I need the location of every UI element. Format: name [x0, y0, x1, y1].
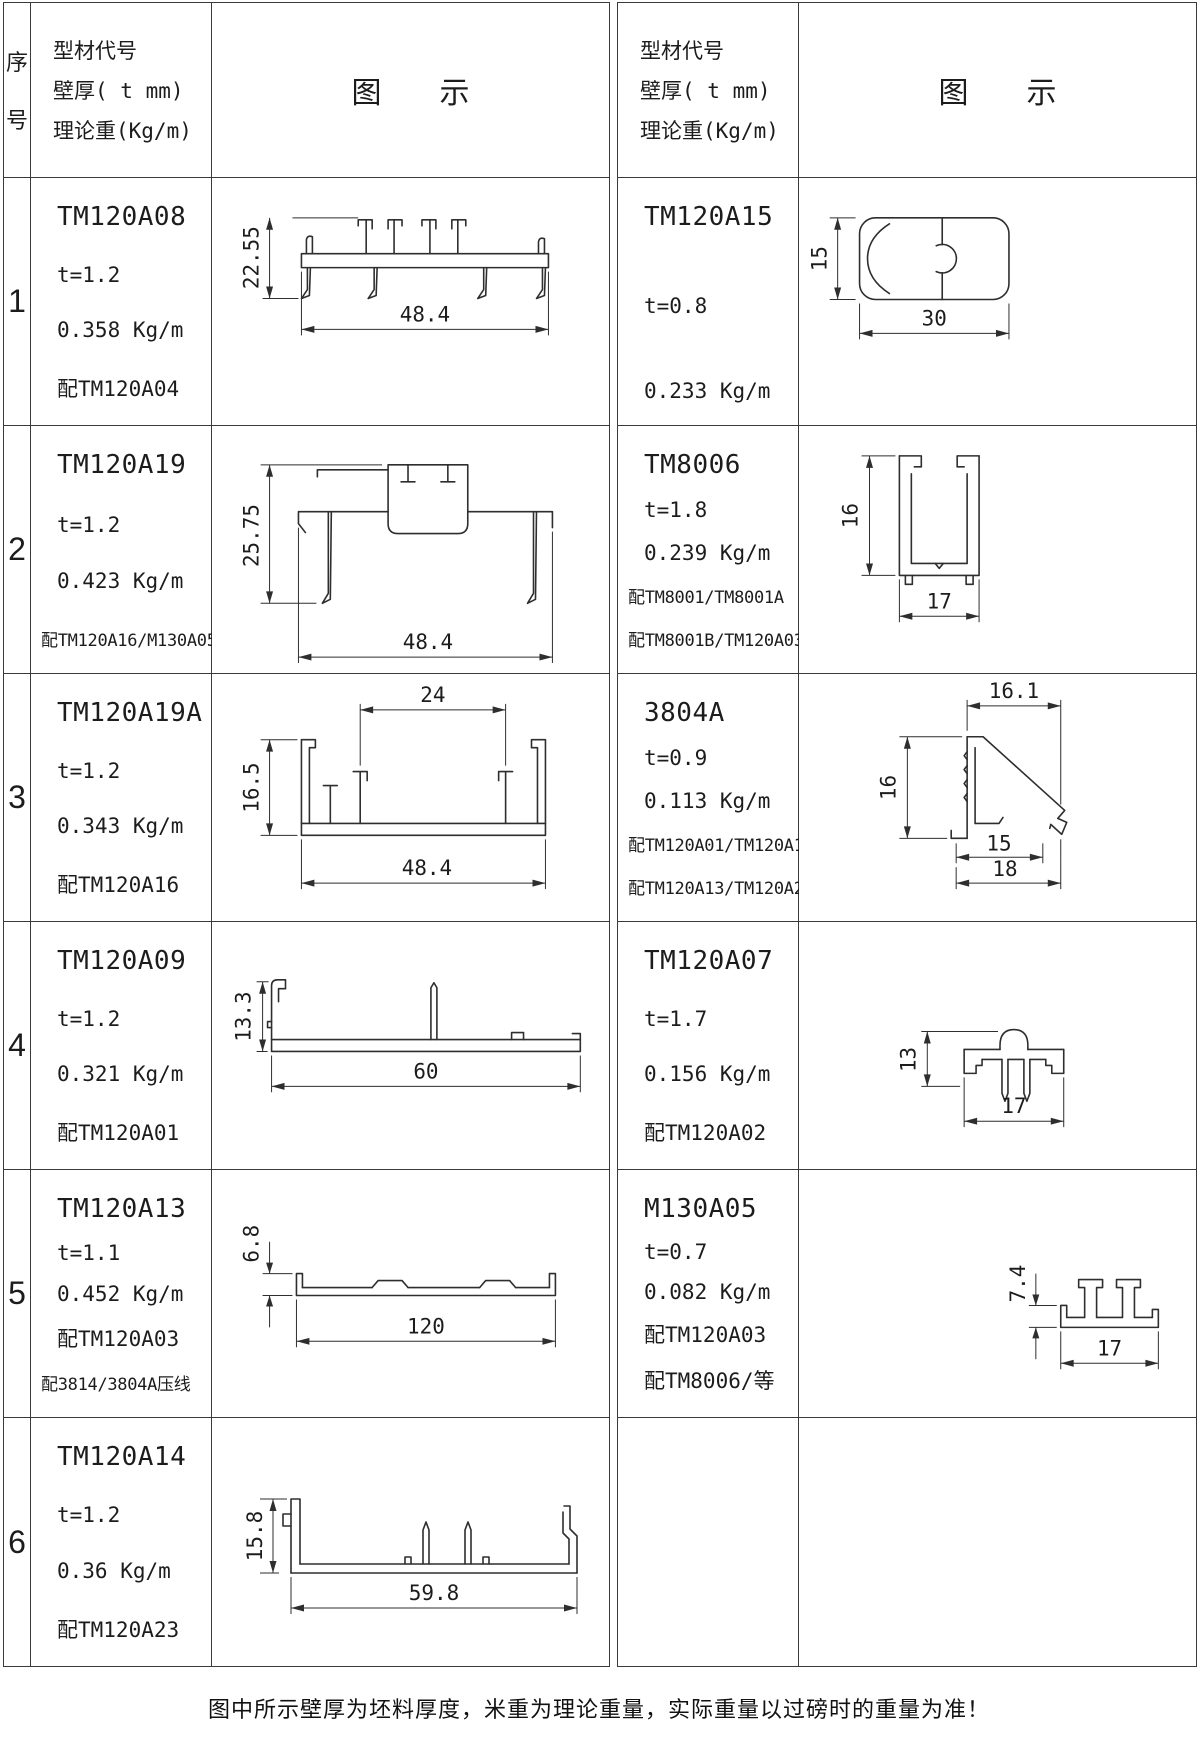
- dim-label-width: 60: [413, 1059, 438, 1083]
- spec-header-cell: 型材代号 壁厚( t mm) 理论重(Kg/m): [618, 3, 799, 178]
- profile-code: M130A05: [644, 1194, 794, 1224]
- diagram-header-cell: 图 示: [212, 3, 609, 178]
- dim-label-width: 30: [922, 306, 947, 330]
- spec-line: t=0.9: [644, 746, 794, 770]
- spec-header-cell: 型材代号 壁厚( t mm) 理论重(Kg/m): [31, 3, 212, 178]
- dim-label-width: 17: [927, 589, 952, 613]
- diagram-header-char1: 图: [939, 68, 969, 112]
- spec-line: t=1.7: [644, 1007, 794, 1031]
- diagram-cell: 24 16.5 48.4: [212, 674, 609, 922]
- spec-line: 0.36 Kg/m: [57, 1559, 207, 1583]
- dim-label-width: 59.8: [409, 1581, 460, 1605]
- spec-cell-tm120a07: TM120A07 t=1.7 0.156 Kg/m 配TM120A02: [618, 922, 799, 1170]
- dim-label-width: 48.4: [402, 856, 452, 880]
- spec-line: t=1.2: [57, 513, 207, 537]
- diagram-cell: 16.1 16 15 18: [799, 674, 1196, 922]
- spec-header-line1: 型材代号: [53, 35, 211, 65]
- seq-header-cell: 序 号: [4, 3, 31, 178]
- mate-line: 配TM8001B/TM120A03: [628, 626, 794, 651]
- profile-diagram-tm120a19: 25.75 48.4: [212, 426, 609, 673]
- profile-diagram-tm120a14: 15.8 59.8: [212, 1418, 609, 1666]
- diagram-header-char1: 图: [352, 68, 382, 112]
- diagram-cell: 13 17: [799, 922, 1196, 1170]
- spec-header-line2: 壁厚( t mm): [640, 75, 798, 105]
- spec-line: 0.239 Kg/m: [644, 541, 794, 565]
- seq-header-top: 序: [6, 45, 28, 77]
- diagram-cell: 6.8 120: [212, 1170, 609, 1418]
- diagram-cell: 25.75 48.4: [212, 426, 609, 674]
- spec-cell-3804a: 3804A t=0.9 0.113 Kg/m 配TM120A01/TM120A1…: [618, 674, 799, 922]
- spec-line: t=1.2: [57, 1007, 207, 1031]
- dim-label-width2: 18: [992, 857, 1017, 881]
- profile-diagram-tm8006: 16 17: [799, 426, 1196, 673]
- diagram-cell: 15.8 59.8: [212, 1418, 609, 1666]
- row-number-cell: 3: [4, 674, 31, 922]
- spec-line: 0.082 Kg/m: [644, 1280, 794, 1304]
- spec-cell-tm120a13: TM120A13 t=1.1 0.452 Kg/m 配TM120A03 配381…: [31, 1170, 212, 1418]
- spec-cell-tm120a19a: TM120A19A t=1.2 0.343 Kg/m 配TM120A16: [31, 674, 212, 922]
- dim-label-height: 7.4: [1006, 1265, 1030, 1303]
- profile-diagram-tm120a07: 13 17: [799, 922, 1196, 1169]
- profile-code: TM120A19A: [57, 698, 207, 728]
- spec-cell-tm8006: TM8006 t=1.8 0.239 Kg/m 配TM8001/TM8001A …: [618, 426, 799, 674]
- mate-line: 配TM8006/等: [644, 1365, 794, 1395]
- mate-line: 配3814/3804A压线: [41, 1370, 207, 1395]
- mate-line: 配TM120A16/M130A05: [41, 626, 207, 651]
- profile-code: TM120A08: [57, 202, 207, 232]
- diagram-header-cell: 图 示: [799, 3, 1196, 178]
- mate-line: 配TM120A01: [57, 1117, 207, 1147]
- dim-label-height: 16: [876, 775, 900, 800]
- diagram-header-char2: 示: [1027, 68, 1057, 112]
- dim-label-height: 16.5: [240, 762, 264, 812]
- profile-diagram-tm120a13: 6.8 120: [212, 1170, 609, 1417]
- dim-label-width: 48.4: [403, 630, 453, 654]
- dim-label-height: 13.3: [232, 991, 256, 1041]
- row-number-cell: 2: [4, 426, 31, 674]
- profile-code: 3804A: [644, 698, 794, 728]
- mate-line: 配TM120A04: [57, 373, 207, 403]
- spec-cell-tm120a08: TM120A08 t=1.2 0.358 Kg/m 配TM120A04: [31, 178, 212, 426]
- spec-header-line3: 理论重(Kg/m): [640, 115, 798, 145]
- profile-code: TM120A14: [57, 1442, 207, 1472]
- profile-table-right: 型材代号 壁厚( t mm) 理论重(Kg/m) 图 示 TM120A15 t=…: [617, 2, 1197, 1667]
- mate-line: 配TM120A16: [57, 869, 207, 899]
- spec-line: 0.233 Kg/m: [644, 379, 794, 403]
- spec-line: 0.343 Kg/m: [57, 814, 207, 838]
- spec-cell-tm120a09: TM120A09 t=1.2 0.321 Kg/m 配TM120A01: [31, 922, 212, 1170]
- empty-diagram-cell: [799, 1418, 1196, 1666]
- spec-line: t=1.8: [644, 498, 794, 522]
- spec-cell-tm120a15: TM120A15 t=0.8 0.233 Kg/m: [618, 178, 799, 426]
- spec-line: t=1.2: [57, 263, 207, 287]
- footer-note: 图中所示壁厚为坯料厚度，米重为理论重量，实际重量以过磅时的重量为准！: [3, 1692, 1195, 1724]
- spec-cell-tm120a19: TM120A19 t=1.2 0.423 Kg/m 配TM120A16/M130…: [31, 426, 212, 674]
- spec-header-line1: 型材代号: [640, 35, 798, 65]
- mate-line: 配TM120A01/TM120A11: [628, 831, 794, 856]
- row-number-cell: 4: [4, 922, 31, 1170]
- dim-label-height: 16: [839, 503, 863, 528]
- dim-label-height: 13: [896, 1047, 920, 1072]
- dim-label-width: 15: [986, 831, 1011, 855]
- spec-line: 0.113 Kg/m: [644, 789, 794, 813]
- profile-diagram-m130a05: 7.4 17: [799, 1170, 1196, 1417]
- dim-label-top: 24: [420, 683, 445, 707]
- profile-diagram-tm120a08: 22.55 48.4: [212, 178, 609, 425]
- dim-label-width: 17: [1097, 1336, 1122, 1360]
- mate-line: 配TM120A02: [644, 1117, 794, 1147]
- dim-label-height: 6.8: [240, 1225, 264, 1263]
- spec-cell-tm120a14: TM120A14 t=1.2 0.36 Kg/m 配TM120A23: [31, 1418, 212, 1666]
- spec-header-line3: 理论重(Kg/m): [53, 115, 211, 145]
- profile-diagram-3804a: 16.1 16 15 18: [799, 674, 1196, 921]
- spec-line: 0.358 Kg/m: [57, 318, 207, 342]
- profile-table-left: 序 号 型材代号 壁厚( t mm) 理论重(Kg/m) 图 示 1 TM120…: [3, 2, 610, 1667]
- spec-line: t=0.8: [644, 294, 794, 318]
- spec-line: 0.321 Kg/m: [57, 1062, 207, 1086]
- profile-diagram-tm120a19a: 24 16.5 48.4: [212, 674, 609, 921]
- mate-line: 配TM120A23: [57, 1614, 207, 1644]
- profile-code: TM8006: [644, 450, 794, 480]
- spec-cell-m130a05: M130A05 t=0.7 0.082 Kg/m 配TM120A03 配TM80…: [618, 1170, 799, 1418]
- row-number-cell: 5: [4, 1170, 31, 1418]
- diagram-cell: 13.3 60: [212, 922, 609, 1170]
- empty-spec-cell: [618, 1418, 799, 1666]
- profile-code: TM120A19: [57, 450, 207, 480]
- spec-line: t=0.7: [644, 1240, 794, 1264]
- spec-line: t=1.2: [57, 1503, 207, 1527]
- profile-code: TM120A15: [644, 202, 794, 232]
- dim-label-height: 15: [808, 246, 832, 271]
- profile-code: TM120A13: [57, 1194, 207, 1224]
- spec-header-line2: 壁厚( t mm): [53, 75, 211, 105]
- profile-diagram-tm120a15: 15 30: [799, 178, 1196, 425]
- seq-header-bottom: 号: [6, 103, 28, 135]
- spec-line: t=1.2: [57, 759, 207, 783]
- spec-line: 0.156 Kg/m: [644, 1062, 794, 1086]
- profile-code: TM120A09: [57, 946, 207, 976]
- dim-label-height: 15.8: [243, 1511, 267, 1562]
- diagram-cell: 7.4 17: [799, 1170, 1196, 1418]
- dim-label-width: 120: [407, 1314, 445, 1338]
- dim-label-width: 48.4: [400, 302, 450, 326]
- dim-label-height: 22.55: [240, 226, 264, 289]
- row-number-cell: 6: [4, 1418, 31, 1666]
- spec-line: 0.423 Kg/m: [57, 569, 207, 593]
- dim-label-width: 17: [1001, 1094, 1026, 1118]
- diagram-cell: 15 30: [799, 178, 1196, 426]
- diagram-header-char2: 示: [440, 68, 470, 112]
- diagram-cell: 16 17: [799, 426, 1196, 674]
- mate-line: 配TM120A03: [57, 1323, 207, 1353]
- mate-line: 配TM120A03: [644, 1319, 794, 1349]
- mate-line: 配TM8001/TM8001A: [628, 583, 794, 608]
- dim-label-top: 16.1: [989, 679, 1039, 703]
- dim-label-height: 25.75: [240, 504, 264, 567]
- diagram-cell: 22.55 48.4: [212, 178, 609, 426]
- spec-line: 0.452 Kg/m: [57, 1282, 207, 1306]
- mate-line: 配TM120A13/TM120A21: [628, 874, 794, 899]
- row-number-cell: 1: [4, 178, 31, 426]
- spec-line: t=1.1: [57, 1241, 207, 1265]
- profile-diagram-tm120a09: 13.3 60: [212, 922, 609, 1169]
- profile-code: TM120A07: [644, 946, 794, 976]
